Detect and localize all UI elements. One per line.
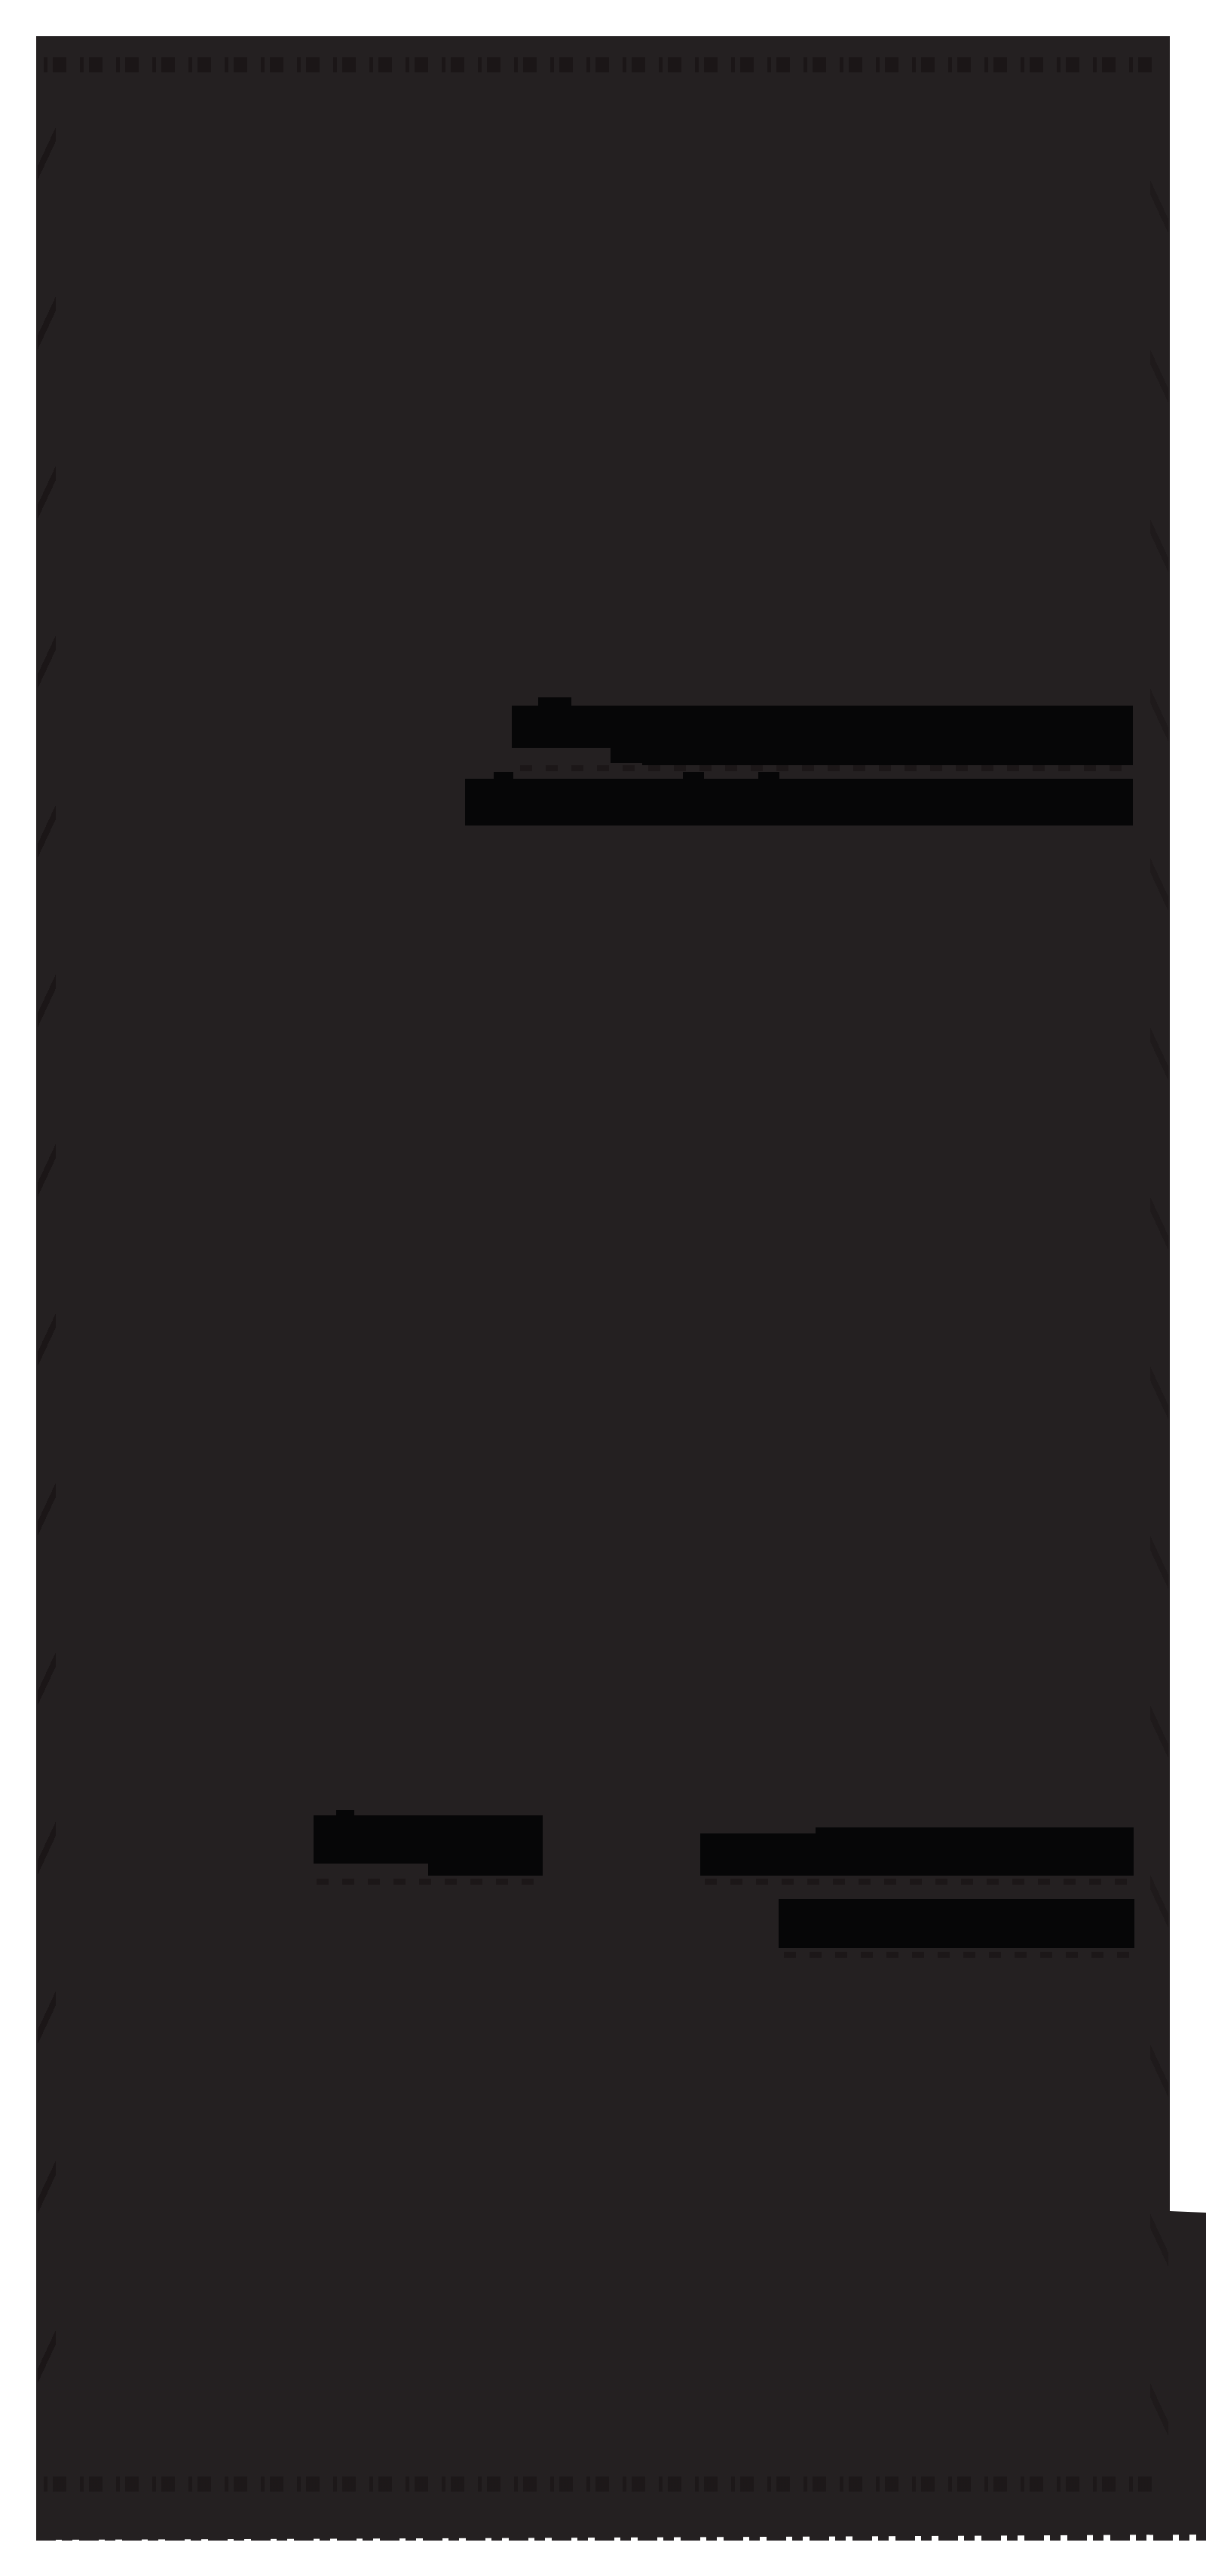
dark-page (0, 0, 1206, 2576)
title-line-1-blob (642, 706, 1133, 765)
feet-under-title-line-1 (520, 765, 1133, 771)
title-line-2-blob (683, 772, 704, 780)
title-line-2-blob (494, 772, 513, 780)
signature-blob (314, 1815, 429, 1864)
page-bottom-ragged-edge (36, 2532, 1206, 2541)
signature-blob (428, 1815, 543, 1876)
title-line-1-blob (512, 706, 645, 748)
attribution-line-1-blob (816, 1827, 1134, 1876)
signature-blob (336, 1810, 354, 1817)
title-line-1-blob (538, 697, 571, 708)
photo-backing (0, 0, 1206, 2576)
attribution-line-2-blob (779, 1899, 1134, 1948)
title-line-2-blob (758, 772, 779, 780)
feet-under-signature (317, 1879, 543, 1885)
feet-under-attribution-line-1 (705, 1879, 1133, 1885)
feet-under-attribution-line-2 (784, 1952, 1134, 1958)
title-line-2-blob (465, 779, 1133, 825)
attribution-line-1-blob (700, 1833, 816, 1876)
